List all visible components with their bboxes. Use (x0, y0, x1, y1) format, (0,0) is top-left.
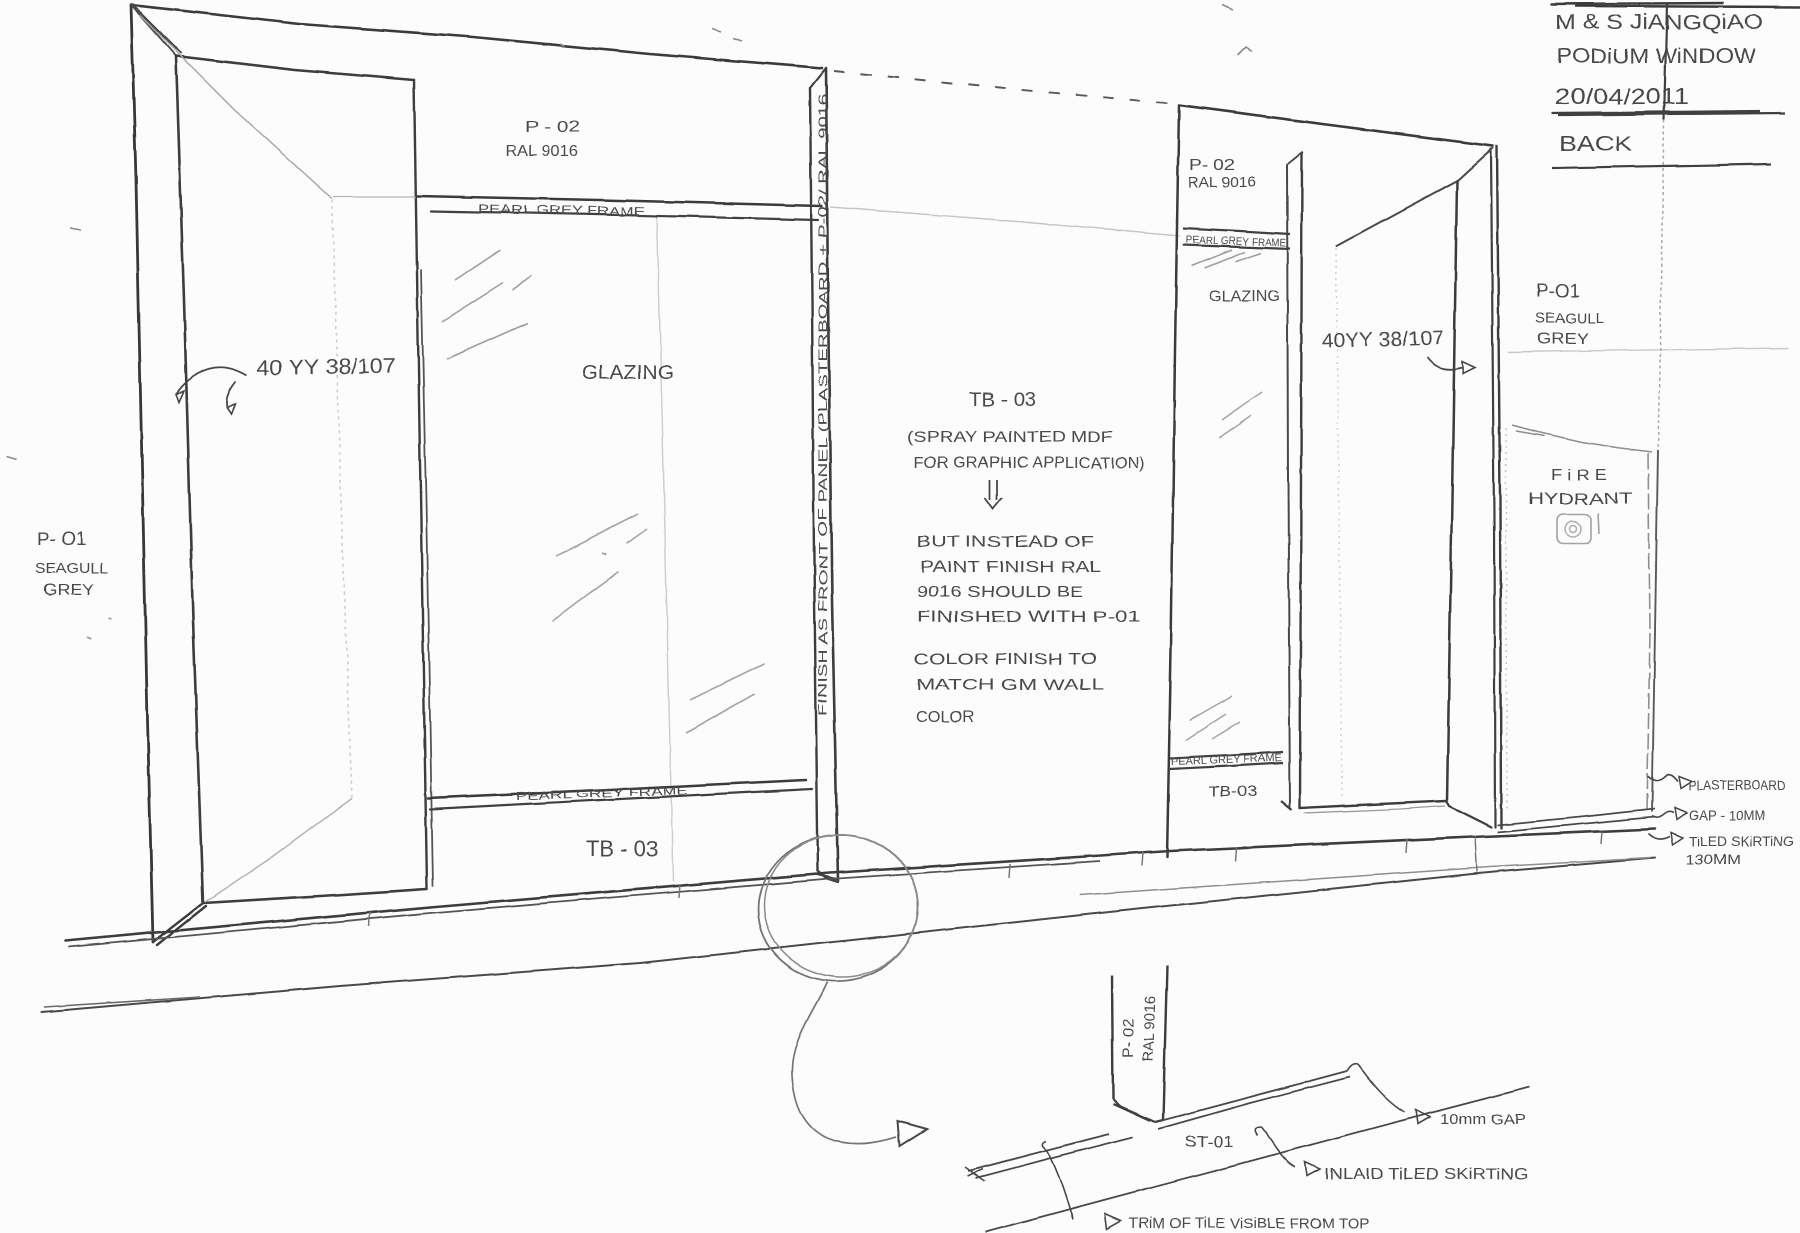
svg-text:10mm GAP: 10mm GAP (1440, 1111, 1526, 1128)
svg-text:F i R E: F i R E (1551, 467, 1607, 484)
svg-text:P - 02: P - 02 (525, 119, 580, 136)
svg-text:HYDRANT: HYDRANT (1528, 491, 1632, 508)
svg-text:P-O1: P-O1 (1536, 281, 1580, 301)
svg-text:40 YY 38/107: 40 YY 38/107 (257, 355, 396, 380)
svg-text:GREY: GREY (1537, 331, 1589, 348)
svg-text:SEAGULL: SEAGULL (1535, 310, 1604, 327)
svg-text:TB - 03: TB - 03 (969, 390, 1036, 411)
svg-text:COLOR FINISH TO: COLOR FINISH TO (914, 651, 1097, 668)
svg-text:RAL 9016: RAL 9016 (1188, 174, 1256, 191)
svg-text:GLAZING: GLAZING (1209, 288, 1280, 305)
svg-text:20/04/2011: 20/04/2011 (1555, 84, 1689, 109)
svg-text:MATCH GM WALL: MATCH GM WALL (916, 677, 1105, 694)
svg-text:(SPRAY PAINTED MDF: (SPRAY PAINTED MDF (907, 429, 1113, 446)
svg-text:FINISH AS FRONT OF PANEL: FINISH AS FRONT OF PANEL (PLASTERBOARD +… (816, 93, 830, 716)
svg-text:TRiM OF TiLE ViSiBLE FROM: TRiM OF TiLE ViSiBLE FROM TOP (1129, 1215, 1370, 1232)
svg-text:TiLED SKiRTiNG: TiLED SKiRTiNG (1689, 833, 1794, 849)
svg-text:RAL 9016: RAL 9016 (1140, 996, 1159, 1063)
svg-text:P- O1: P- O1 (37, 529, 86, 549)
svg-text:GAP - 10MM: GAP - 10MM (1689, 807, 1765, 823)
svg-text:M & S JiANGQiAO: M & S JiANGQiAO (1555, 11, 1763, 34)
svg-text:TB-03: TB-03 (1209, 784, 1257, 800)
svg-text:P- 02: P- 02 (1120, 1018, 1137, 1058)
svg-text:BACK: BACK (1559, 133, 1632, 156)
svg-text:40YY 38/107: 40YY 38/107 (1321, 327, 1444, 353)
svg-text:RAL 9016: RAL 9016 (505, 143, 578, 160)
svg-text:PODiUM WiNDOW: PODiUM WiNDOW (1557, 45, 1756, 68)
svg-text:BUT INSTEAD OF: BUT INSTEAD OF (917, 534, 1094, 551)
svg-text:FOR GRAPHIC APPLICATION): FOR GRAPHIC APPLICATION) (914, 455, 1145, 472)
svg-text:PLASTERBOARD: PLASTERBOARD (1689, 777, 1786, 793)
svg-text:COLOR: COLOR (916, 709, 974, 726)
svg-text:PAINT FINISH RAL: PAINT FINISH RAL (920, 559, 1101, 576)
svg-text:130MM: 130MM (1686, 851, 1741, 867)
svg-text:9016 SHOULD BE: 9016 SHOULD BE (917, 584, 1083, 601)
svg-text:FINISHED WITH P-01: FINISHED WITH P-01 (917, 609, 1140, 626)
svg-text:GREY: GREY (43, 582, 94, 599)
svg-text:PEARL GREY FRAME: PEARL GREY FRAME (478, 202, 645, 219)
svg-text:GLAZING: GLAZING (582, 362, 674, 384)
svg-text:SEAGULL: SEAGULL (35, 560, 108, 577)
svg-text:ST-01: ST-01 (1185, 1134, 1234, 1151)
svg-text:P- 02: P- 02 (1189, 157, 1235, 174)
svg-text:TB - 03: TB - 03 (586, 836, 658, 861)
svg-text:INLAID TiLED SKiRTiNG: INLAID TiLED SKiRTiNG (1324, 1166, 1528, 1183)
